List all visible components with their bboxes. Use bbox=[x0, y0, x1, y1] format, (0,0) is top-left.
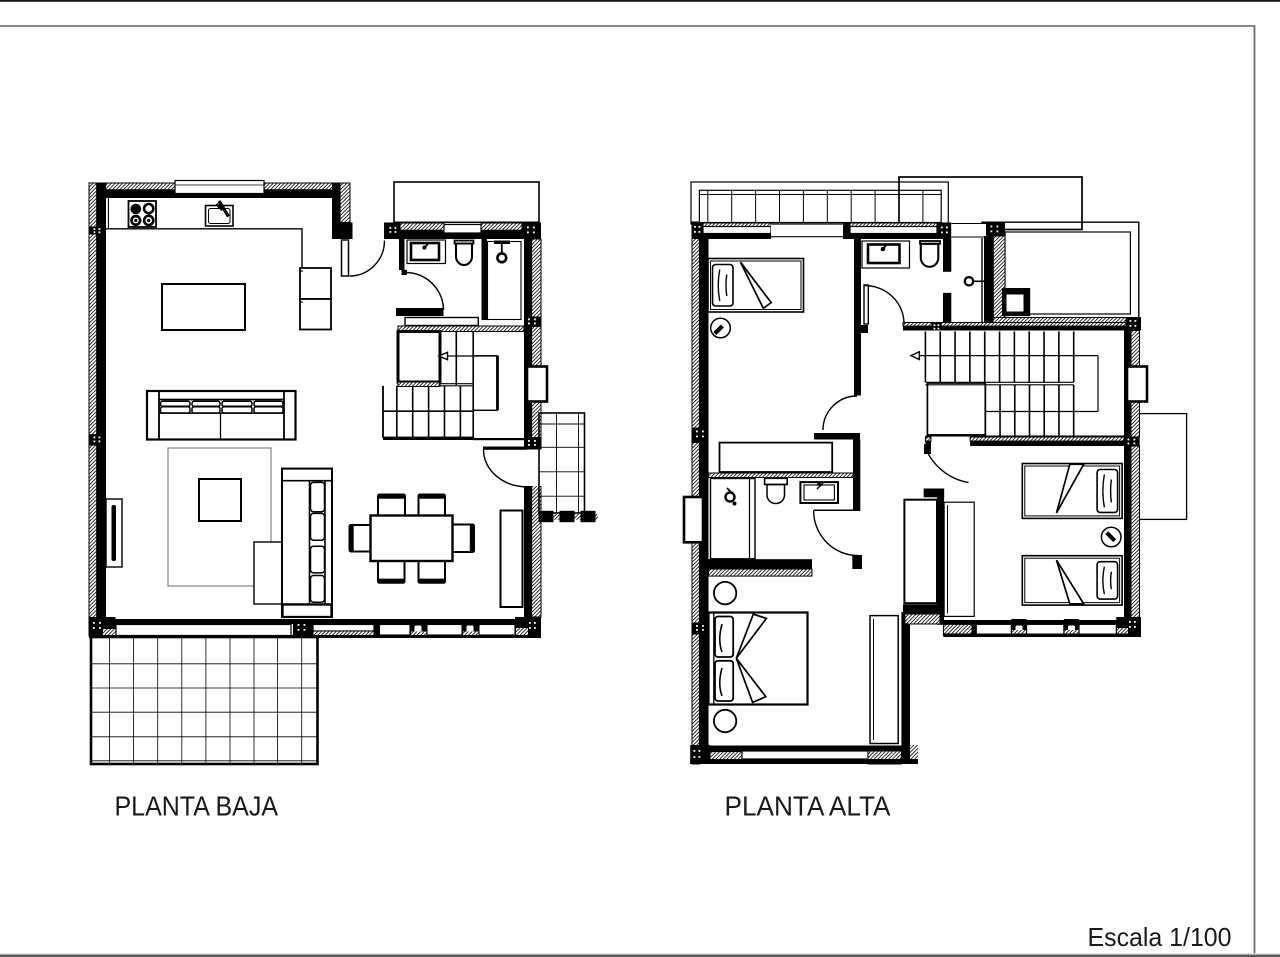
svg-text:PLANTA BAJA: PLANTA BAJA bbox=[115, 791, 279, 822]
svg-text:PLANTA ALTA: PLANTA ALTA bbox=[725, 791, 892, 822]
svg-text:Escala 1/100: Escala 1/100 bbox=[1088, 922, 1232, 952]
